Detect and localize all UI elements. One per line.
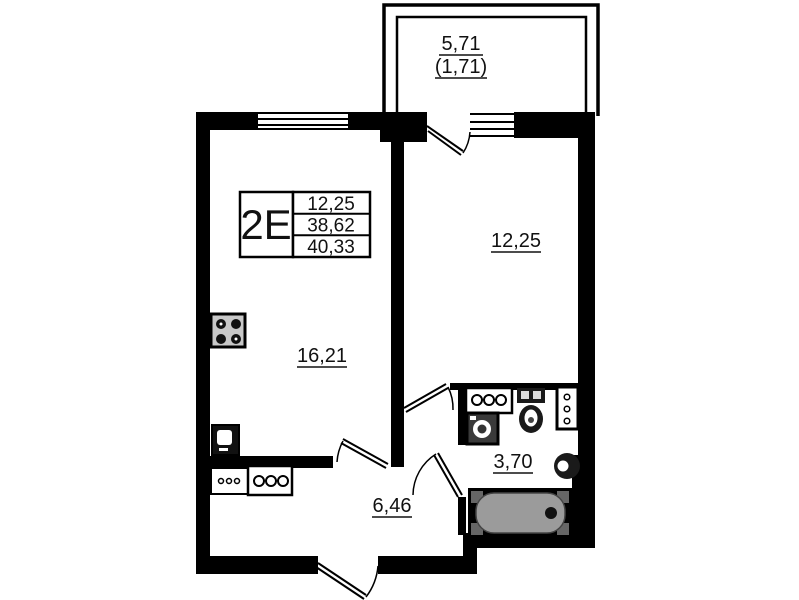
bath-counter-icon [466,388,512,413]
balcony-counted-area-label: (1,71) [435,56,487,78]
title-block: 2E 12,25 38,62 40,33 [240,192,370,258]
wall-top-mid [348,112,382,130]
bathroom-area-label: 3,70 [494,451,533,473]
wall-rooms-divider [391,128,404,467]
area-row-total: 38,62 [307,216,355,237]
bathtub-drain [545,507,557,519]
room-right-area-label: 12,25 [491,230,541,252]
towel-rail-icon [554,453,580,479]
wall-bottom-mid [378,556,477,574]
room-left-area-label: 16,21 [297,345,347,367]
counter-unit-large [248,466,292,495]
floor-plan-page: 2E 12,25 38,62 40,33 5,71 (1,71) 12,25 1… [0,0,799,600]
bathtub-icon [468,488,572,538]
hallway-area-label: 6,46 [373,495,412,517]
unit-type-label: 2E [240,201,291,248]
counter-unit-small [211,468,248,494]
washing-machine-icon [467,413,498,444]
stove-icon [211,314,245,347]
wall-left [196,112,210,574]
riser-panel-icon [557,387,578,429]
kitchen-sink-icon [212,425,239,455]
area-row-overall: 40,33 [307,237,355,258]
wall-bottom-left [196,556,318,574]
wall-bathroom-left-lower [458,497,466,535]
balcony-area-label: 5,71 [442,33,481,55]
area-row-living: 12,25 [307,194,355,215]
floor-plan-drawing: 2E 12,25 38,62 40,33 5,71 (1,71) 12,25 1… [0,0,799,600]
wall-right [578,112,595,455]
